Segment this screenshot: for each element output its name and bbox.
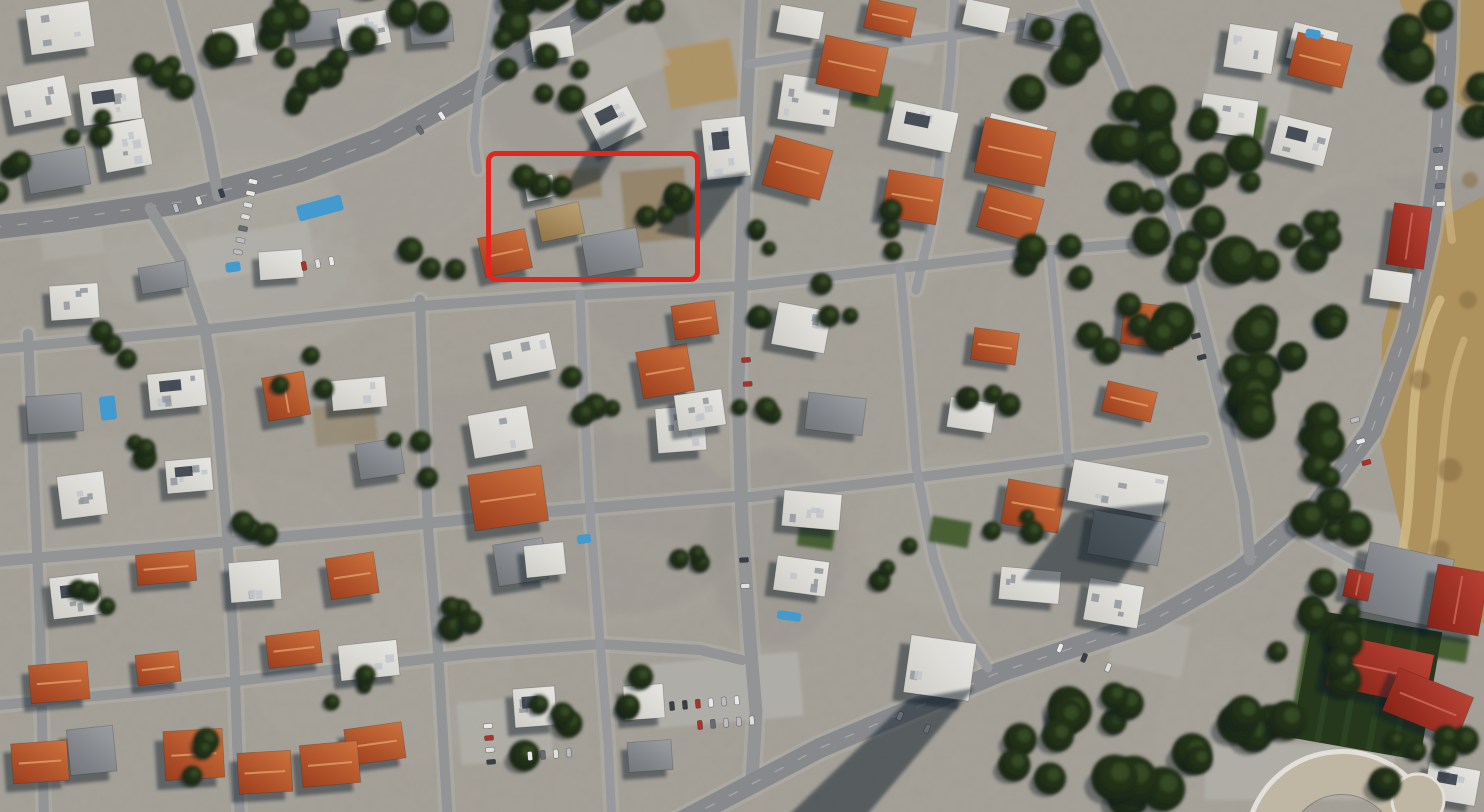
satellite-imagery <box>0 0 1484 812</box>
satellite-map-view[interactable] <box>0 0 1484 812</box>
